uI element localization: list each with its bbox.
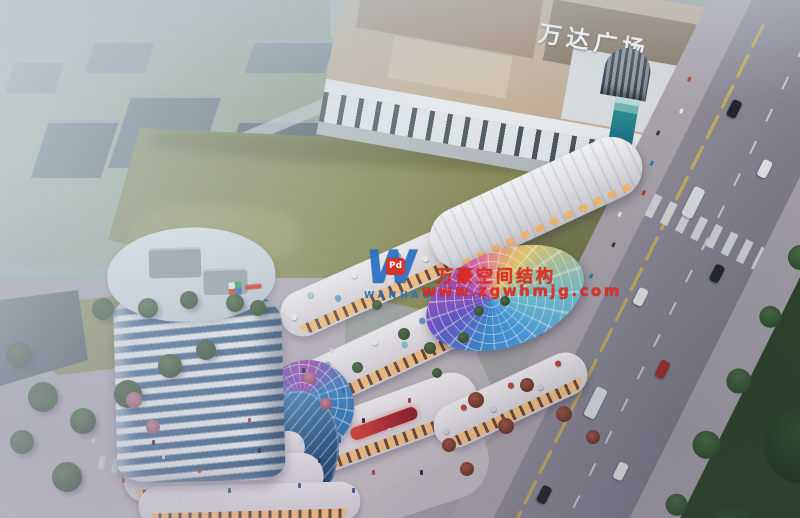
umbrella xyxy=(324,361,332,369)
vehicle xyxy=(536,484,553,505)
rooftop-equipment xyxy=(149,247,202,278)
umbrella xyxy=(353,362,361,370)
pedestrian xyxy=(649,160,654,166)
pedestrian xyxy=(258,448,261,453)
tower-roof xyxy=(106,225,276,323)
umbrella xyxy=(334,294,342,302)
barrel-window xyxy=(549,217,560,227)
pedestrian xyxy=(589,273,594,279)
barrel-window xyxy=(592,196,603,206)
pedestrian xyxy=(420,470,423,475)
mall-roof-patch xyxy=(356,0,545,59)
tower-logo-text-blur xyxy=(244,284,261,291)
mall-roof-white xyxy=(561,47,747,148)
background-buildings xyxy=(330,0,600,38)
umbrella xyxy=(306,384,314,392)
street-tree xyxy=(783,241,800,275)
pedestrian xyxy=(162,454,165,459)
district-building xyxy=(108,95,222,168)
umbrella xyxy=(554,360,562,368)
mall-roof-patch xyxy=(543,0,721,90)
mall-roof-sign: 万达广场 xyxy=(536,14,719,76)
street-tree xyxy=(688,426,726,464)
tower-logo xyxy=(228,279,263,296)
plaza-crosswalk xyxy=(306,482,379,501)
umbrella xyxy=(442,427,450,435)
blossom-tree xyxy=(146,420,160,434)
pedestrian xyxy=(641,190,646,196)
district-building xyxy=(220,120,320,183)
umbrella xyxy=(350,271,358,279)
plaza-tree xyxy=(114,380,142,408)
plaza-tree xyxy=(226,294,244,312)
storefront-lights xyxy=(152,508,348,518)
vehicle xyxy=(632,287,649,308)
crosswalk xyxy=(645,194,765,270)
autumn-tree xyxy=(556,406,572,422)
tower-logo-mark xyxy=(228,281,242,295)
field-highlight xyxy=(130,205,300,265)
mall-entrance-arch xyxy=(600,44,654,101)
plaza-tree xyxy=(180,291,198,309)
mall-shopfront-row xyxy=(319,92,738,194)
district-building xyxy=(85,40,156,73)
umbrella xyxy=(394,252,402,260)
umbrella xyxy=(465,235,473,243)
street-tree xyxy=(662,490,692,518)
tree-shadow-strip xyxy=(150,126,621,179)
plaza-tree xyxy=(92,298,114,320)
pedestrian xyxy=(352,488,355,493)
median-sidewalk xyxy=(461,0,800,518)
umbrella xyxy=(536,383,544,391)
barrel-window xyxy=(563,210,574,220)
pedestrian xyxy=(679,108,684,114)
autumn-tree xyxy=(586,430,600,444)
plaza-tree xyxy=(196,340,216,360)
mall-base xyxy=(317,121,733,207)
plaza-tree xyxy=(138,298,158,318)
plaza-tree xyxy=(70,408,96,434)
park-tree-cluster xyxy=(751,395,800,497)
tower-body xyxy=(113,287,286,483)
plaza-crosswalk xyxy=(97,455,164,482)
barrel-window xyxy=(534,223,545,233)
vehicle xyxy=(612,461,629,482)
umbrella xyxy=(489,405,497,413)
pedestrian xyxy=(152,440,155,445)
pedestrian xyxy=(617,211,622,217)
park-strip xyxy=(501,94,800,518)
umbrella xyxy=(460,403,468,411)
barrel-window xyxy=(519,230,530,240)
blossom-tree xyxy=(126,392,142,408)
pedestrian xyxy=(248,418,251,423)
dark-building xyxy=(0,290,88,386)
umbrella xyxy=(306,291,314,299)
plaza-tree xyxy=(28,382,58,412)
umbrella xyxy=(418,317,426,325)
vehicle xyxy=(583,386,608,420)
pedestrian xyxy=(372,470,375,475)
umbrella xyxy=(422,255,430,263)
pedestrian xyxy=(122,478,125,483)
barrel-window xyxy=(607,189,618,199)
vehicle xyxy=(756,159,773,180)
barrel-window xyxy=(621,183,632,193)
autumn-tree xyxy=(460,462,474,476)
misty-district xyxy=(0,0,460,265)
plaza-tree xyxy=(10,430,34,454)
umbrella xyxy=(290,314,298,322)
street-tree xyxy=(722,364,756,398)
vehicle xyxy=(709,263,726,284)
mall-banner xyxy=(608,96,640,145)
plaza-lawn xyxy=(44,280,251,376)
pedestrian xyxy=(178,498,181,503)
barrel-window xyxy=(505,237,516,247)
vehicle xyxy=(654,359,671,380)
district-building xyxy=(5,60,66,93)
umbrella xyxy=(507,381,515,389)
district-building xyxy=(311,95,398,148)
pedestrian xyxy=(198,468,201,473)
barrel-window xyxy=(578,203,589,213)
street-tree xyxy=(756,302,786,332)
park-tree-cluster xyxy=(776,479,800,518)
pedestrian xyxy=(687,76,692,82)
umbrella xyxy=(400,340,408,348)
pedestrian xyxy=(656,130,661,136)
pedestrian xyxy=(228,488,231,493)
field-shade xyxy=(500,180,630,320)
vehicle xyxy=(726,99,743,120)
park-tree-cluster xyxy=(794,278,800,372)
plaza-tree xyxy=(158,354,182,378)
storefront-lights xyxy=(136,485,312,501)
background-road xyxy=(238,51,441,147)
mall-roof-patch xyxy=(387,36,512,98)
plaza-tree xyxy=(6,342,32,368)
vehicle xyxy=(681,185,706,219)
lane-line-white xyxy=(411,44,800,518)
mall-fascia xyxy=(324,79,740,165)
park-tree-cluster xyxy=(685,494,774,518)
rooftop-equipment xyxy=(203,268,248,295)
plaza-tree xyxy=(250,300,266,316)
plaza-tree xyxy=(52,462,82,492)
scene-canvas: 万达广场 xyxy=(0,0,800,518)
tower-podium xyxy=(138,481,361,518)
wanda-mall-building xyxy=(317,0,764,207)
umbrella xyxy=(378,274,386,282)
district-building xyxy=(31,120,120,178)
umbrella xyxy=(438,232,446,240)
pedestrian xyxy=(611,242,616,248)
umbrella xyxy=(371,339,379,347)
district-building xyxy=(245,40,336,73)
pedestrian xyxy=(92,438,95,443)
